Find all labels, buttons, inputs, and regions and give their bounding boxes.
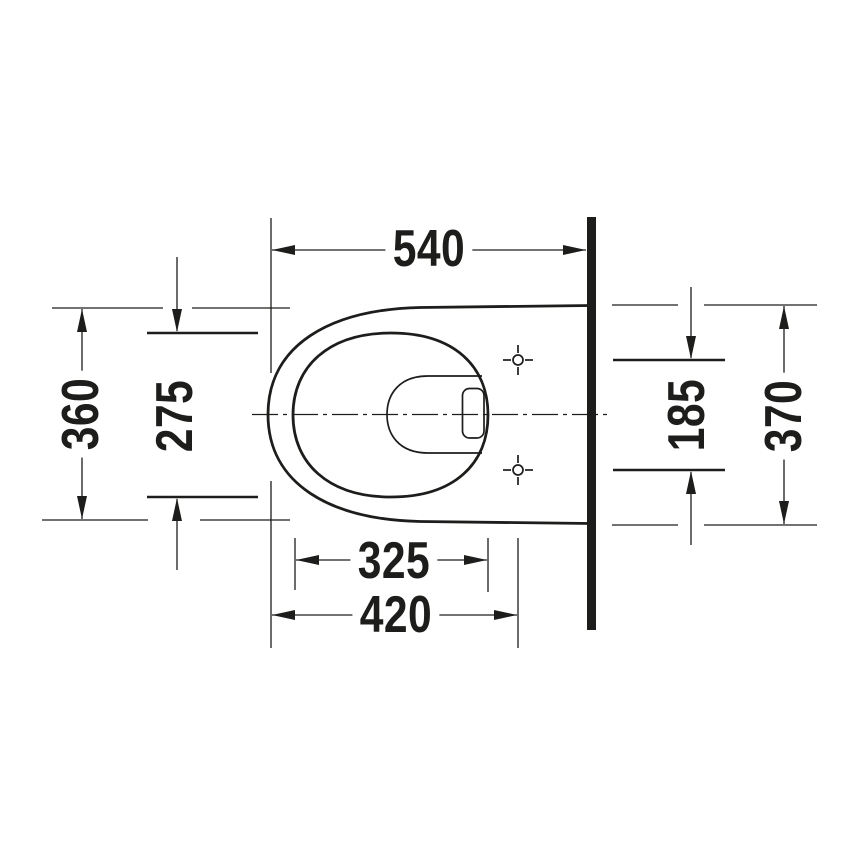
- fixing-hole-top-circle: [513, 355, 523, 365]
- dim-label-fixing-hole-distance: 420: [352, 589, 439, 641]
- arrow-420-right: [494, 610, 517, 620]
- arrow-360-bottom: [77, 496, 87, 519]
- arrow-540-right: [563, 245, 586, 255]
- arrow-185-top: [686, 336, 696, 359]
- wall-section-bar: [587, 217, 596, 630]
- dim-label-overall-depth: 540: [385, 223, 472, 275]
- arrow-420-left: [272, 610, 295, 620]
- technical-drawing-canvas: 540 360 275 185 370 325 420: [0, 0, 868, 868]
- dim-label-seat-opening-length: 325: [350, 535, 437, 587]
- dim-label-overall-width: 370: [758, 372, 810, 459]
- fixing-hole-bottom: [503, 455, 533, 485]
- arrow-185-bottom: [686, 471, 696, 494]
- arrow-360-top: [77, 309, 87, 332]
- drawing-svg: [0, 0, 868, 868]
- arrow-370-top: [779, 306, 789, 329]
- fixing-hole-top: [503, 345, 533, 375]
- arrow-325-right: [464, 555, 487, 565]
- arrow-540-left: [272, 245, 295, 255]
- arrow-370-bottom: [779, 501, 789, 524]
- arrow-325-left: [296, 555, 319, 565]
- dim-label-front-width: 360: [55, 370, 107, 457]
- dim-label-fixing-hole-spacing: 185: [661, 371, 713, 458]
- flush-jet-outline: [463, 389, 485, 439]
- arrow-275-top: [172, 309, 182, 332]
- arrow-275-bottom: [172, 498, 182, 521]
- dim-label-seat-opening-width: 275: [149, 372, 201, 459]
- fixing-hole-bottom-circle: [513, 465, 523, 475]
